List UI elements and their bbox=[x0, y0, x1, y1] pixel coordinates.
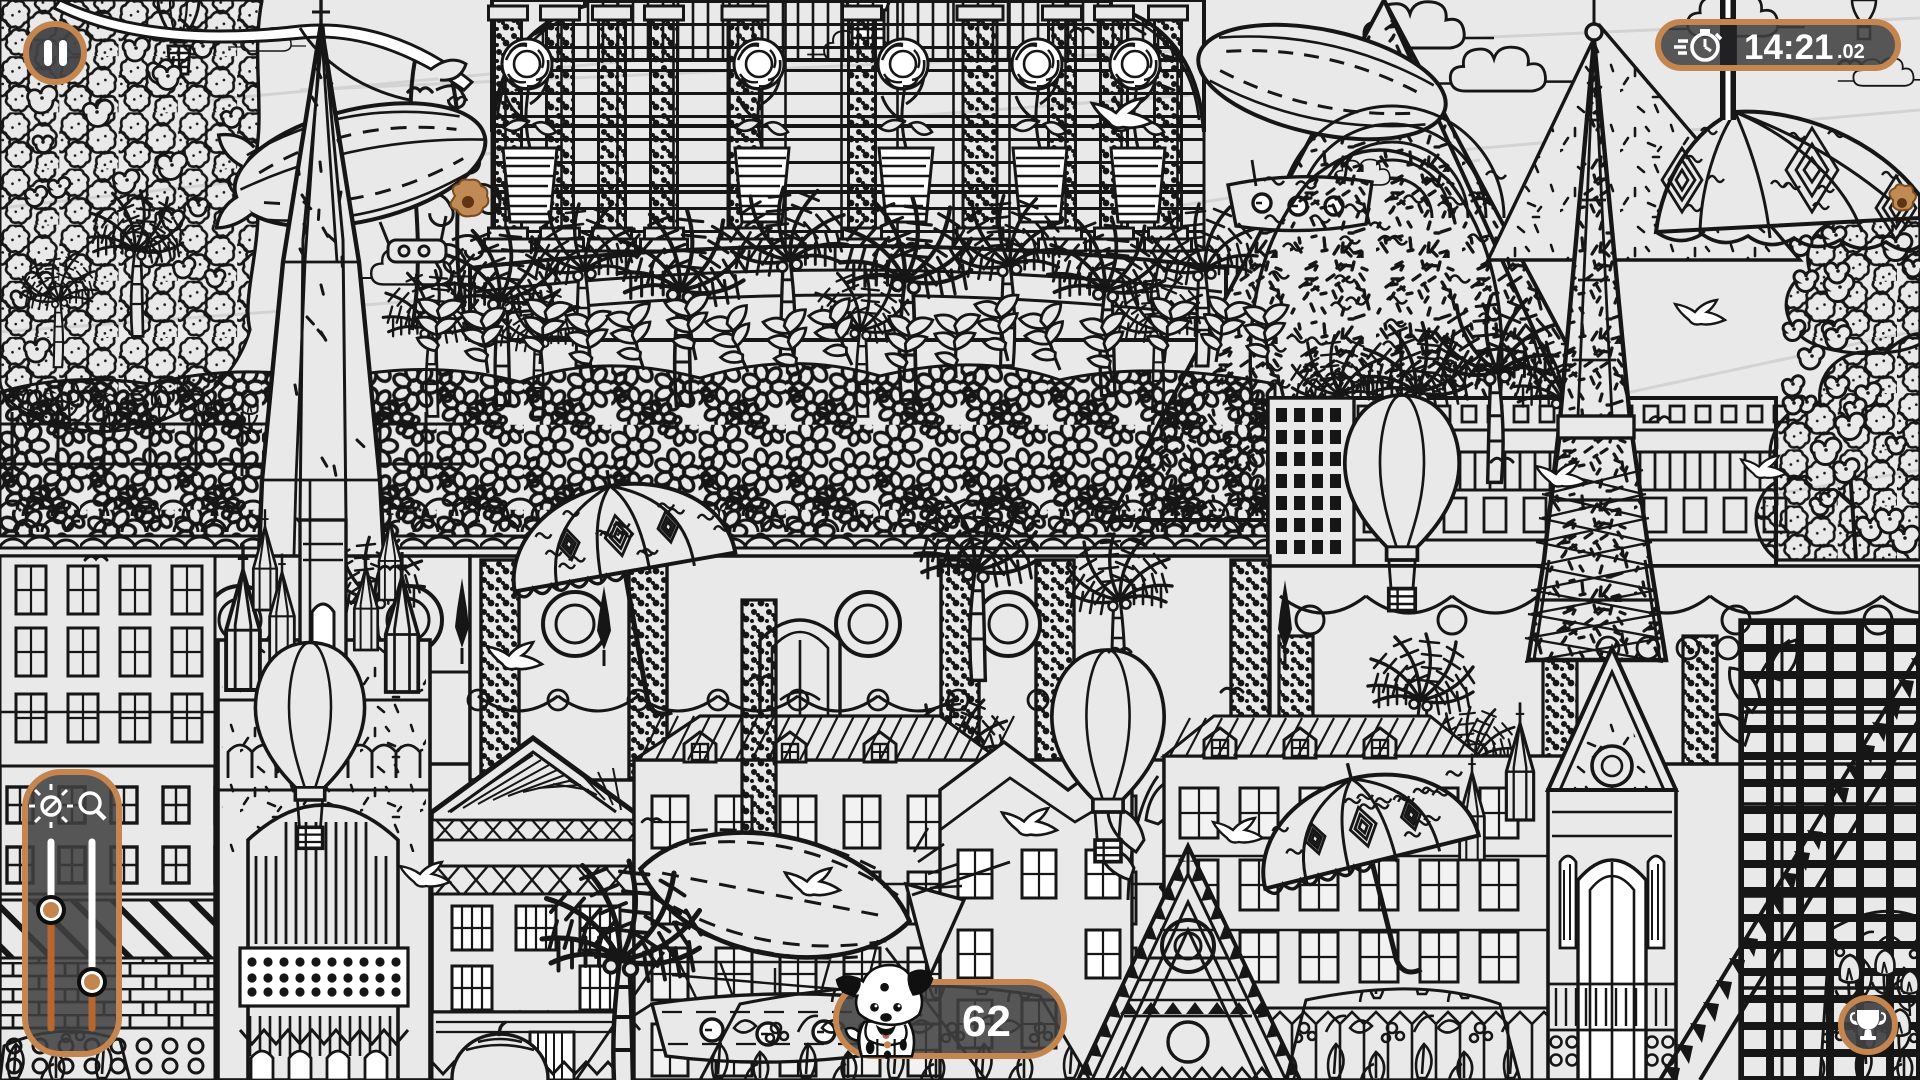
svg-text:.02: .02 bbox=[1837, 41, 1865, 63]
svg-text:14:21: 14:21 bbox=[1744, 28, 1834, 67]
svg-text:62: 62 bbox=[962, 997, 1011, 1046]
